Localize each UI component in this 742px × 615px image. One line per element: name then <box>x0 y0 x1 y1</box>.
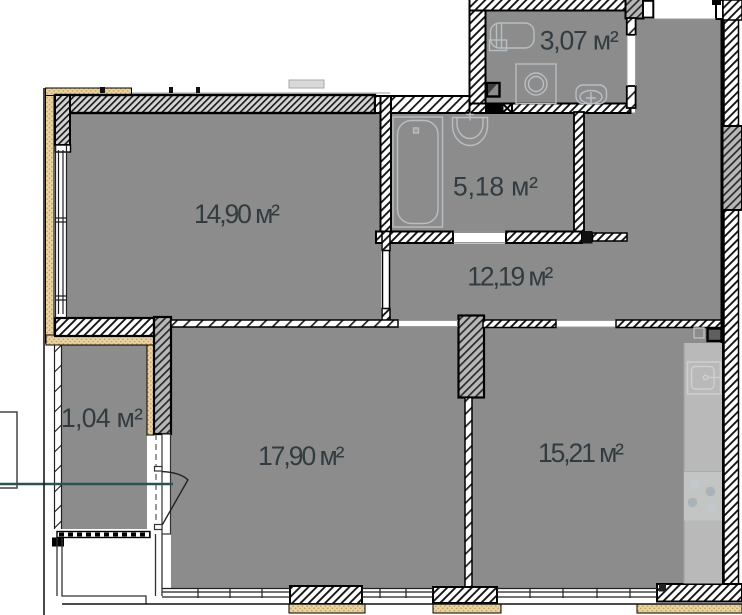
svg-text:17,90 м²: 17,90 м² <box>258 441 345 471</box>
svg-text:14,90 м²: 14,90 м² <box>194 199 280 229</box>
svg-text:15,21 м²: 15,21 м² <box>538 438 624 468</box>
svg-text:5,18 м²: 5,18 м² <box>453 172 538 202</box>
svg-text:1,04 м²: 1,04 м² <box>61 403 143 433</box>
svg-text:12,19 м²: 12,19 м² <box>467 262 553 292</box>
svg-text:3,07 м²: 3,07 м² <box>540 26 619 56</box>
